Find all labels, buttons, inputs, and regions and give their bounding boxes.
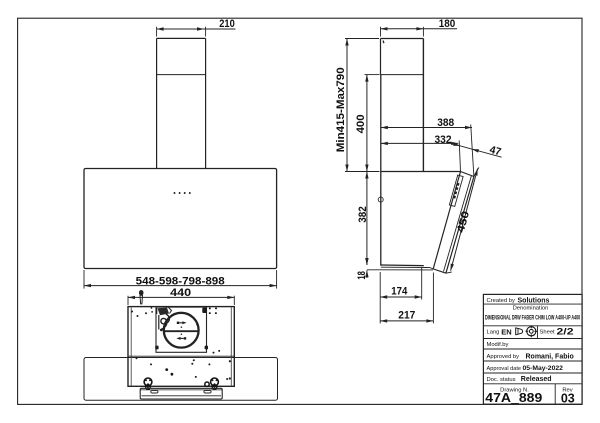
svg-text:Lang: Lang (487, 330, 500, 336)
svg-text:05-May-2022: 05-May-2022 (523, 365, 564, 372)
svg-text:2/2: 2/2 (557, 327, 574, 338)
svg-text:Denomination: Denomination (513, 306, 549, 312)
svg-text:210: 210 (219, 18, 235, 30)
svg-text:Modif.by: Modif.by (487, 342, 509, 348)
svg-text:Released: Released (521, 376, 552, 383)
svg-text:Romani, Fabio: Romani, Fabio (526, 353, 574, 360)
svg-text:Solutions: Solutions (518, 297, 550, 304)
svg-text:Created by: Created by (487, 298, 515, 304)
svg-text:180: 180 (439, 18, 456, 30)
svg-text:47A_889: 47A_889 (485, 391, 542, 405)
svg-text:03: 03 (561, 391, 575, 405)
svg-text:217: 217 (398, 310, 415, 322)
svg-text:382: 382 (357, 206, 369, 223)
svg-text:400: 400 (355, 114, 367, 133)
svg-text:332: 332 (435, 134, 452, 146)
svg-text:Sheet: Sheet (540, 329, 556, 335)
svg-text:18: 18 (356, 271, 368, 280)
svg-text:450: 450 (455, 210, 472, 235)
svg-text:Min415-Max790: Min415-Max790 (335, 67, 347, 152)
svg-text:548-598-798-898: 548-598-798-898 (136, 276, 225, 288)
svg-text:174: 174 (391, 286, 407, 298)
svg-text:EN: EN (501, 327, 511, 336)
svg-text:Doc. status: Doc. status (487, 377, 516, 383)
svg-text:Approval date: Approval date (487, 366, 522, 372)
svg-text:440: 440 (170, 287, 191, 299)
svg-text:Approved by: Approved by (487, 354, 520, 360)
svg-text:388: 388 (437, 117, 454, 129)
svg-text:47: 47 (488, 144, 502, 159)
svg-text:DIMENSIONAL DRW FABER CHIM LOW: DIMENSIONAL DRW FABER CHIM LOW A400-UP A… (485, 315, 580, 322)
